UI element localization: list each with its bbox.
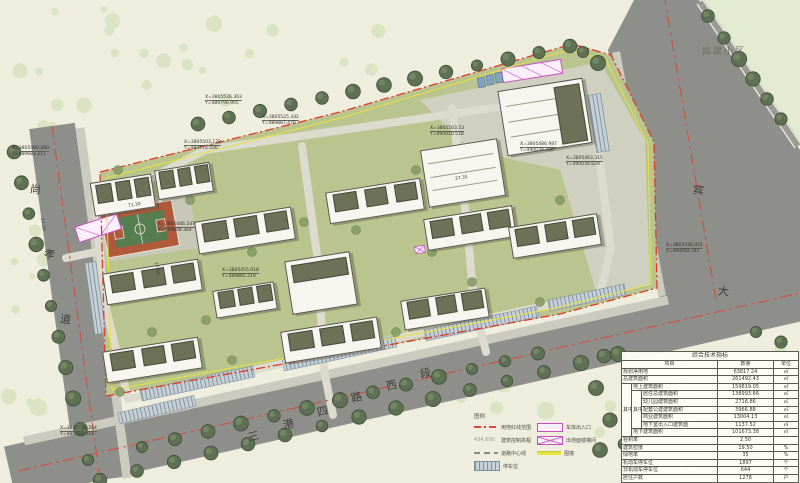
legend-title: 图例	[474, 412, 624, 420]
row-label: 地下建筑面积	[632, 429, 718, 437]
among-cell: 其中	[622, 383, 632, 436]
row-value: 35	[718, 452, 774, 460]
row-label: 地上建筑面积	[632, 383, 718, 391]
site-plan-canvas: X=3805480.460Y=489683.211X=3805536.363Y=…	[0, 0, 800, 483]
row-label: 非机动车停车位	[622, 467, 718, 475]
row-unit	[774, 436, 799, 444]
row-unit: ㎡	[774, 421, 799, 429]
legend-item: 用地红线范围	[474, 423, 531, 431]
planned-area-label: 拟建小区	[702, 44, 746, 57]
row-label: 地下室出入口建筑面	[642, 421, 718, 429]
legend-item-label: 用地红线范围	[501, 424, 531, 431]
row-unit: ㎡	[774, 383, 799, 391]
row-value: 19.50	[718, 444, 774, 452]
row-value: 3966.88	[718, 406, 774, 414]
row-value: 1137.52	[718, 421, 774, 429]
row-value: 2716.86	[718, 398, 774, 406]
row-unit: ㎡	[774, 429, 799, 437]
legend-swatch-elev: 434.600	[474, 437, 498, 443]
row-label: 配套公建建筑面积	[642, 406, 718, 414]
col-header: 数量	[718, 361, 774, 369]
row-value: 644	[718, 467, 774, 475]
row-unit: ㎡	[774, 368, 799, 376]
legend-item: 出地面楼梯间	[537, 436, 596, 444]
legend-item: 车库出入口	[537, 423, 596, 431]
row-value: 101673.38	[718, 429, 774, 437]
legend-item-label: 建筑控制高程	[501, 437, 531, 444]
row-value: 1278	[718, 474, 774, 482]
row-label: 总建筑面积	[622, 376, 718, 384]
row-value: 63817.24	[718, 368, 774, 376]
row-unit: 户	[774, 474, 799, 482]
legend-item-label: 道路中心线	[501, 450, 526, 457]
legend-item-label: 围墙	[564, 450, 574, 457]
table-title: 综合技术指标	[622, 352, 799, 361]
row-label: 建筑密度	[622, 444, 718, 452]
col-header: 项目	[622, 361, 718, 369]
row-unit: 个	[774, 467, 799, 475]
legend-item: 434.600建筑控制高程	[474, 436, 531, 444]
row-unit: ㎡	[774, 376, 799, 384]
row-label: 容积率	[622, 436, 718, 444]
legend-column-1: 用地红线范围434.600建筑控制高程道路中心线停车位	[474, 423, 531, 470]
col-header: 单位	[774, 361, 799, 369]
among-cell: 其中	[632, 391, 642, 429]
row-unit: %	[774, 452, 799, 460]
indicators-table-grid: 综合技术指标项目数量单位规划净用地63817.24㎡总建筑面积261492.43…	[621, 351, 799, 483]
row-value: 13004.13	[718, 414, 774, 422]
legend-item: 道路中心线	[474, 449, 531, 457]
row-label: 幼儿园建筑面积	[642, 398, 718, 406]
legend-swatch-wall	[537, 451, 561, 454]
row-label: 商业建筑面积	[642, 414, 718, 422]
row-label: 居住户数	[622, 474, 718, 482]
row-label: 机动车停车位	[622, 459, 718, 467]
legend-item-label: 停车位	[503, 463, 518, 470]
legend: 图例 用地红线范围434.600建筑控制高程道路中心线停车位 车库出入口出地面楼…	[474, 412, 624, 470]
row-value: 138993.66	[718, 391, 774, 399]
row-unit: %	[774, 444, 799, 452]
row-label: 居住总建筑面积	[642, 391, 718, 399]
legend-column-2: 车库出入口出地面楼梯间围墙	[537, 423, 596, 470]
legend-item-label: 出地面楼梯间	[566, 437, 596, 444]
indicators-table: 综合技术指标项目数量单位规划净用地63817.24㎡总建筑面积261492.43…	[621, 351, 798, 483]
legend-item: 围墙	[537, 449, 596, 457]
row-unit: ㎡	[774, 414, 799, 422]
row-unit: ㎡	[774, 406, 799, 414]
row-value: 1897	[718, 459, 774, 467]
legend-swatch-garage	[537, 423, 563, 432]
row-value: 2.50	[718, 436, 774, 444]
legend-item: 停车位	[474, 462, 531, 470]
row-value: 159819.05	[718, 383, 774, 391]
row-value: 261492.43	[718, 376, 774, 384]
row-unit: 个	[774, 459, 799, 467]
row-unit: ㎡	[774, 391, 799, 399]
legend-swatch-parking	[474, 461, 500, 471]
legend-swatch-redline	[474, 426, 498, 428]
row-label: 绿地率	[622, 452, 718, 460]
legend-swatch-stair	[537, 436, 563, 445]
row-unit: ㎡	[774, 398, 799, 406]
row-label: 规划净用地	[622, 368, 718, 376]
legend-swatch-centerline	[474, 452, 498, 454]
legend-item-label: 车库出入口	[566, 424, 591, 431]
